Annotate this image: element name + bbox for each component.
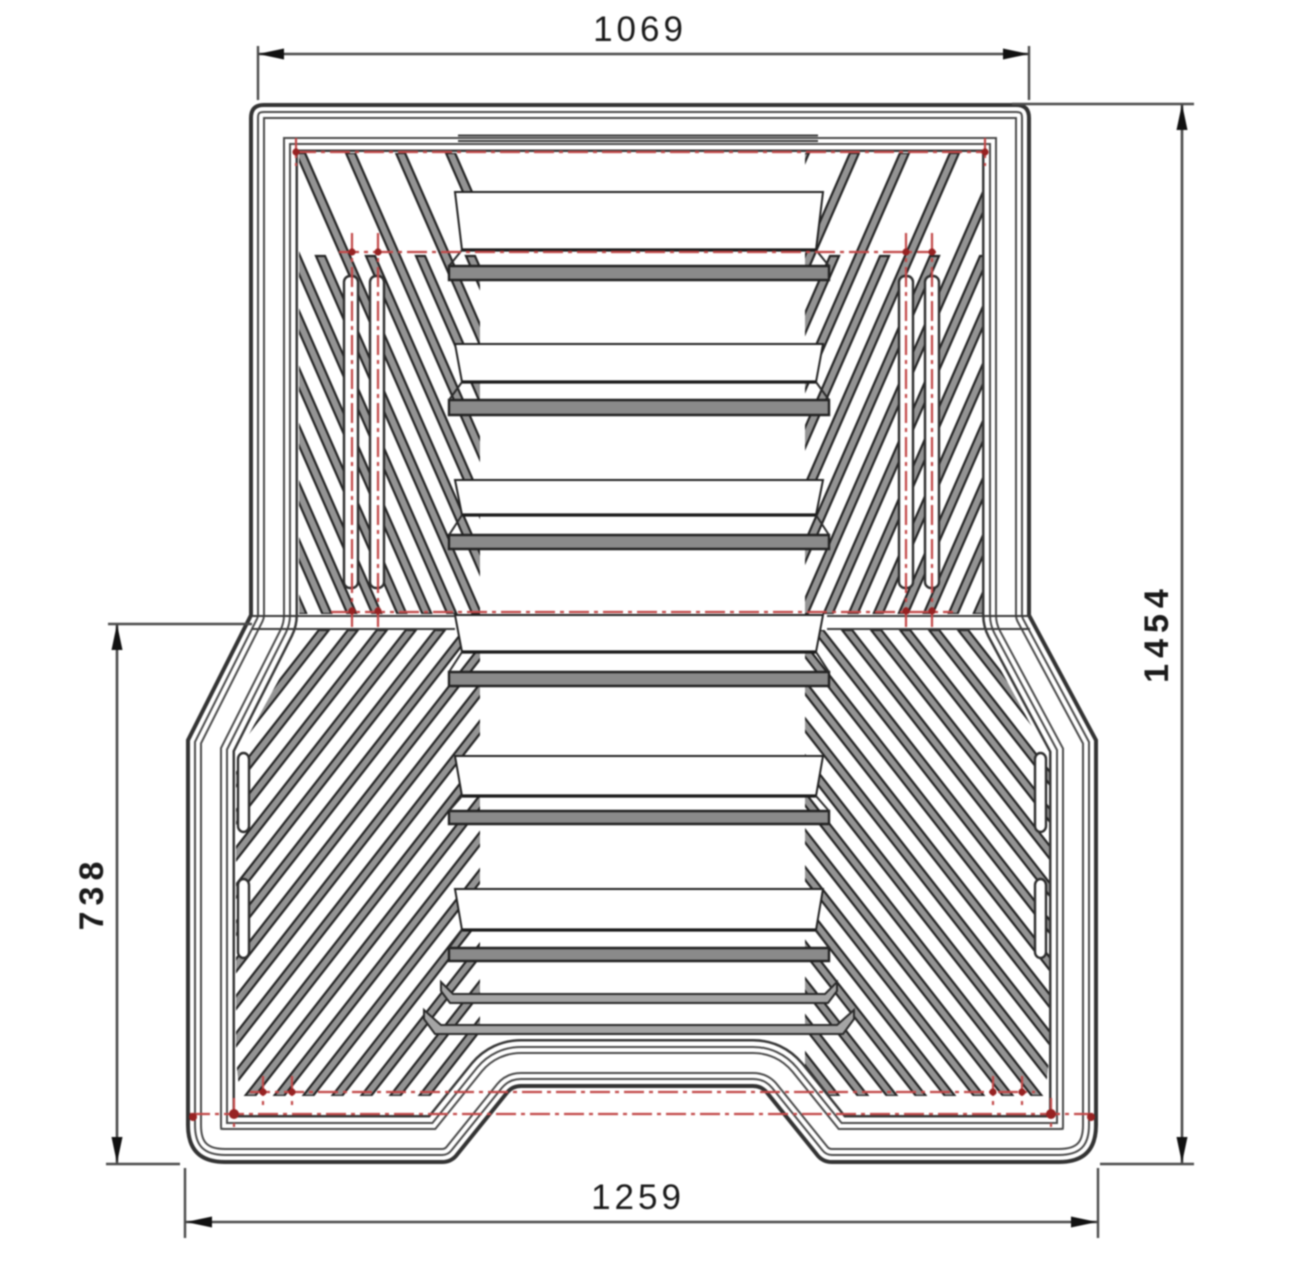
- svg-text:738: 738: [73, 856, 111, 931]
- svg-text:1069: 1069: [593, 10, 687, 49]
- svg-text:1259: 1259: [591, 1178, 685, 1217]
- svg-text:1454: 1454: [1138, 583, 1176, 683]
